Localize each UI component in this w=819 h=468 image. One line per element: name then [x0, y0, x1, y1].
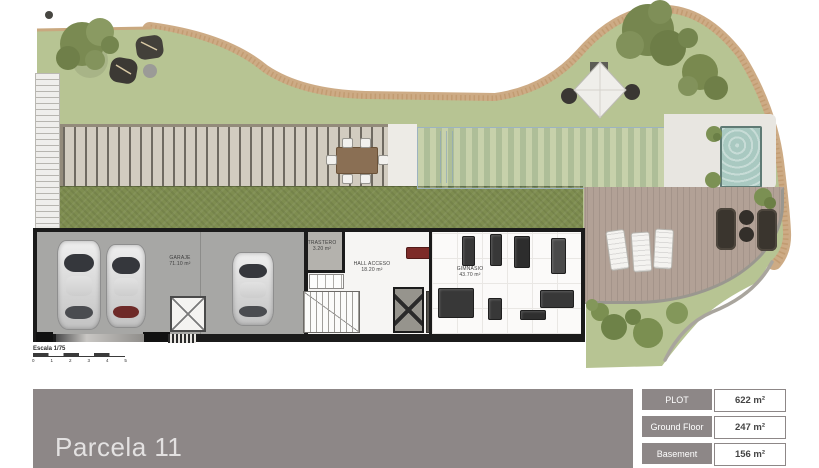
chair — [326, 155, 337, 165]
treadmill — [551, 238, 566, 274]
room-area: 43.70 m² — [448, 272, 492, 278]
pouf — [739, 227, 754, 242]
storage-room — [308, 232, 345, 273]
table-row: Ground Floor 247 m² — [642, 416, 788, 439]
car-windshield — [112, 257, 139, 273]
outdoor-dining-table — [336, 147, 378, 174]
table-row-label: PLOT — [642, 389, 712, 410]
car-windshield — [64, 254, 94, 272]
car-roof — [240, 282, 266, 298]
table-row-label: Ground Floor — [642, 416, 712, 437]
room-area: 18.20 m² — [350, 267, 394, 273]
scale-tick: 5 — [124, 358, 127, 363]
dumbbell-rack — [520, 310, 546, 320]
table-row-value: 247 m² — [714, 416, 786, 439]
wall-pier — [143, 332, 170, 342]
gym-equipment — [514, 236, 530, 268]
table-row-label: Basement — [642, 443, 712, 464]
room-area: 71.10 m² — [158, 261, 202, 267]
table-row: Basement 156 m² — [642, 443, 788, 466]
sun-lounger — [653, 229, 674, 270]
scale-tick: 1 — [50, 358, 53, 363]
sun-lounger — [631, 231, 653, 272]
table-row-value: 156 m² — [714, 443, 786, 466]
room-area: 3.20 m² — [300, 246, 344, 252]
summary-table: PLOT 622 m² Ground Floor 247 m² Basement… — [642, 389, 788, 468]
gym-equipment — [540, 290, 574, 308]
gym-equipment — [490, 234, 502, 266]
pool-side-path — [388, 124, 417, 190]
scale-bar: Escala 1/75 0 1 2 3 4 5 — [33, 346, 133, 363]
car-windshield — [239, 264, 268, 278]
pool-lane-lines — [440, 131, 456, 183]
exterior-staircase — [35, 73, 60, 228]
car-rear-window — [113, 306, 139, 318]
wall-pier — [36, 332, 53, 342]
car — [232, 252, 274, 326]
scale-tick: 0 — [32, 358, 35, 363]
shelving-unit — [309, 274, 344, 289]
site-plan-page: GARAJE 71.10 m² TRASTERO 3.20 m² HALL AC… — [0, 0, 819, 468]
interior-staircase — [303, 291, 360, 333]
car — [106, 244, 146, 328]
table-row-value: 622 m² — [714, 389, 786, 412]
room-label-trastero: TRASTERO 3.20 m² — [300, 240, 344, 252]
gym-equipment — [438, 288, 474, 318]
daybed — [757, 209, 777, 251]
scale-label: Escala 1/75 — [33, 346, 133, 352]
chair — [342, 174, 353, 184]
car-roof — [66, 276, 93, 295]
footer-panel: Parcela 11 — [33, 389, 633, 468]
ramp-hatch — [168, 334, 196, 343]
table-row: PLOT 622 m² — [642, 389, 788, 412]
chair — [360, 174, 371, 184]
car-roof — [114, 278, 138, 296]
plot-title: Parcela 11 — [55, 432, 182, 463]
garage-ramp-platform — [170, 296, 206, 332]
room-label-gimnasio: GIMNASIO 43.70 m² — [448, 266, 492, 278]
hedge-strip — [60, 186, 583, 230]
scale-bar-graphic — [33, 353, 125, 357]
car — [57, 240, 101, 330]
chair — [342, 138, 353, 148]
daybed — [716, 208, 736, 250]
car-rear-window — [65, 306, 94, 319]
scale-tick: 4 — [106, 358, 109, 363]
elevator — [393, 287, 424, 333]
garage-door — [56, 334, 144, 342]
chair — [360, 138, 371, 148]
jacuzzi — [720, 126, 762, 188]
room-label-hall: HALL ACCESO 18.20 m² — [350, 261, 394, 273]
pouf — [739, 210, 754, 225]
gym-equipment — [462, 236, 475, 266]
scale-tick: 3 — [87, 358, 90, 363]
scale-tick: 2 — [69, 358, 72, 363]
scale-ticks: 0 1 2 3 4 5 — [32, 358, 127, 363]
gym-bench — [488, 298, 502, 320]
room-label-garaje: GARAJE 71.10 m² — [158, 255, 202, 267]
car-rear-window — [239, 306, 266, 317]
